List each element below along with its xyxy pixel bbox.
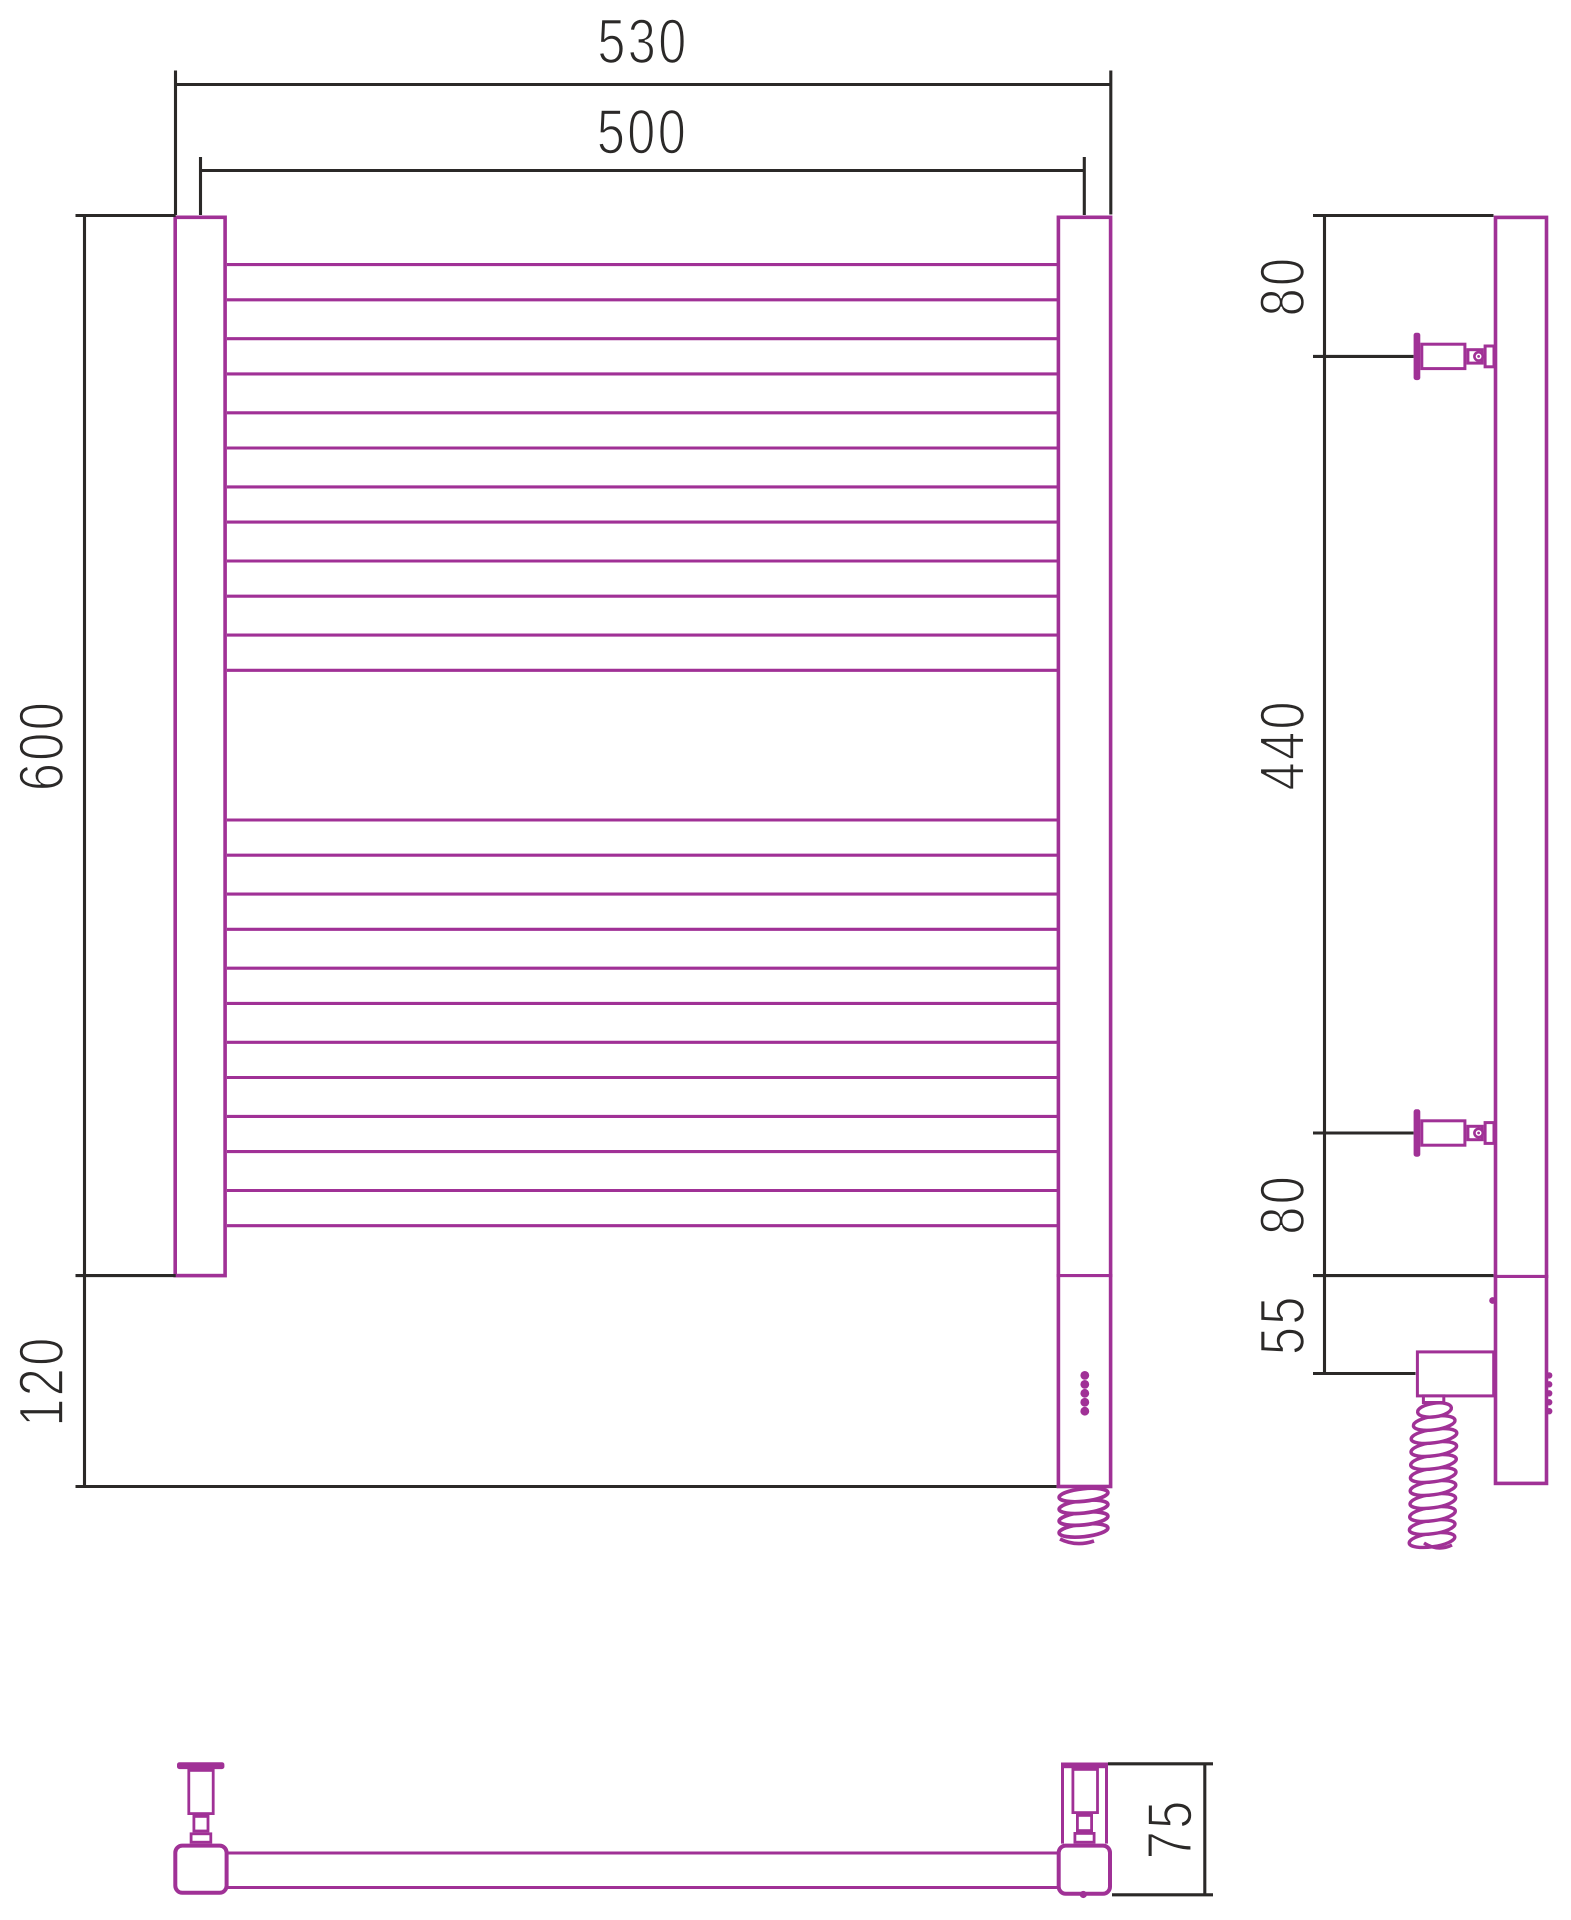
svg-text:500: 500	[597, 97, 688, 168]
svg-text:120: 120	[7, 1335, 78, 1426]
svg-text:600: 600	[7, 700, 78, 791]
svg-text:530: 530	[597, 7, 688, 78]
svg-text:440: 440	[1248, 699, 1319, 790]
svg-text:80: 80	[1248, 256, 1319, 317]
svg-text:55: 55	[1248, 1294, 1319, 1355]
svg-text:80: 80	[1248, 1174, 1319, 1235]
svg-text:75: 75	[1135, 1798, 1206, 1859]
